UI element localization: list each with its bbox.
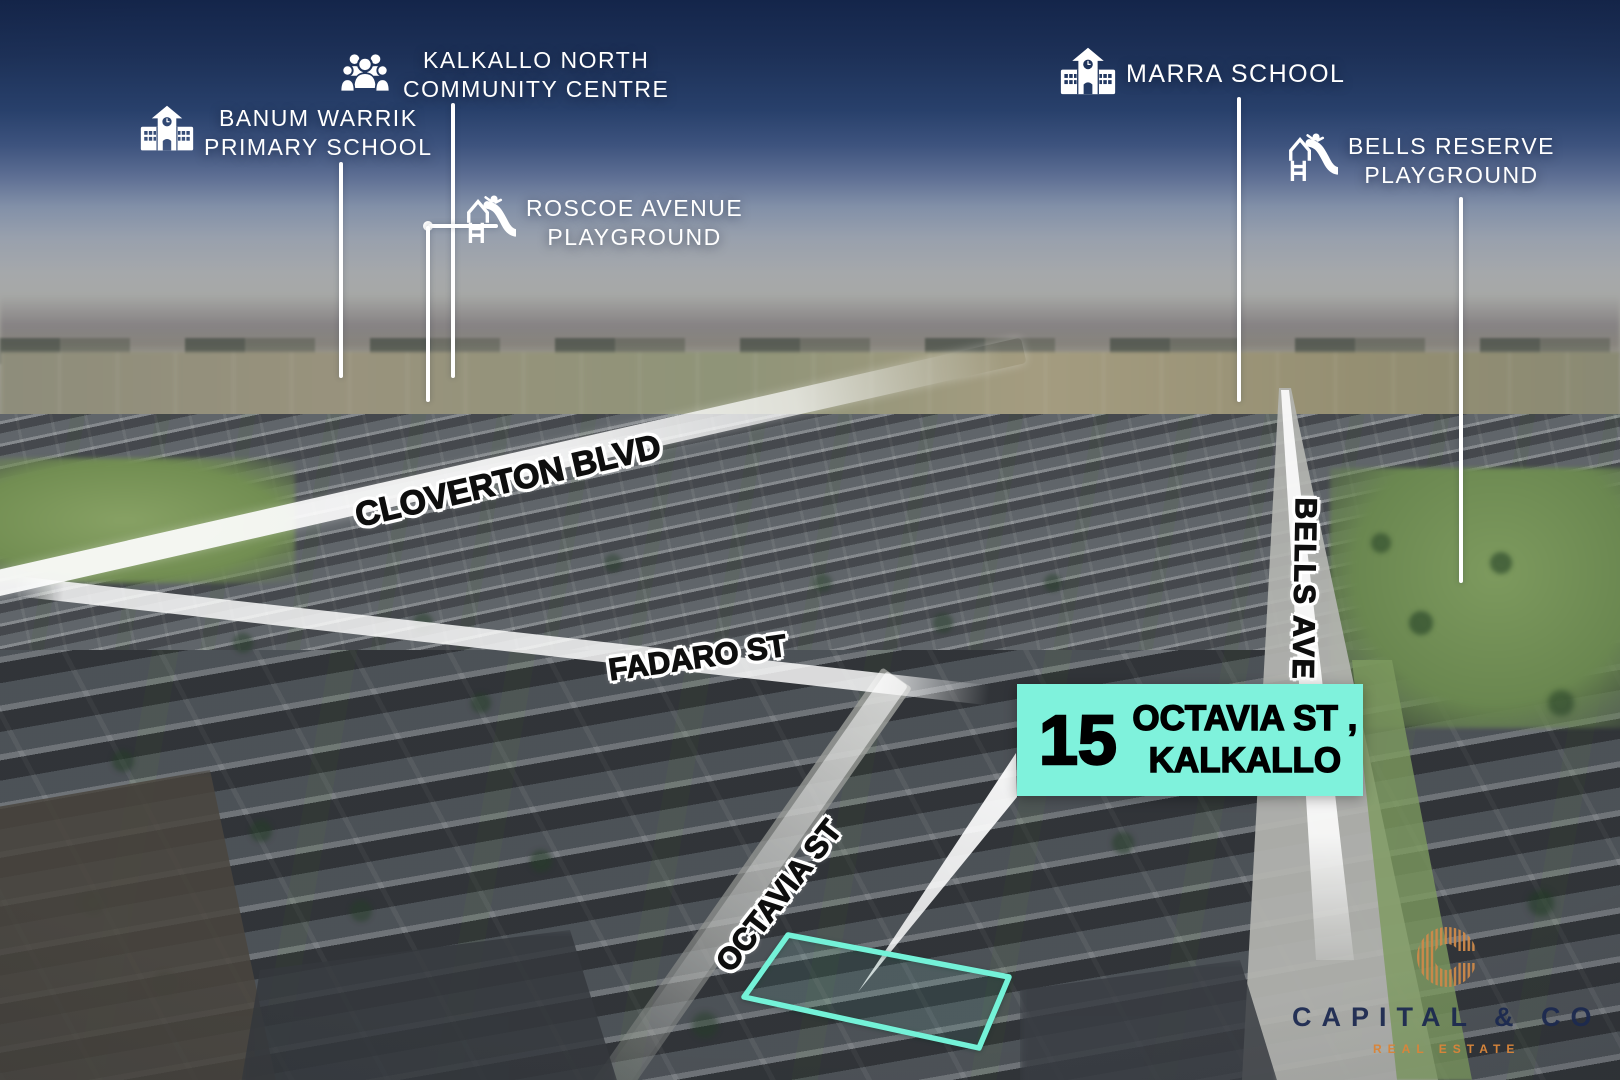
street-label-bells-ave: BELLS AVE — [1285, 497, 1322, 681]
poi-roscoe-avenue-playground: ROSCOE AVENUE PLAYGROUND — [462, 194, 743, 251]
address-line2: KALKALLO — [1131, 740, 1359, 782]
leader-line-banum-warrik — [339, 162, 343, 378]
school-icon — [140, 104, 194, 158]
poi-label: BANUM WARRIK PRIMARY SCHOOL — [204, 104, 432, 161]
poi-label: ROSCOE AVENUE PLAYGROUND — [526, 194, 743, 251]
poi-label-line2: PRIMARY SCHOOL — [204, 133, 432, 162]
poi-banum-warrik-primary-school: BANUM WARRIK PRIMARY SCHOOL — [140, 104, 432, 161]
poi-label-line1: BANUM WARRIK — [204, 104, 432, 133]
poi-marra-school: MARRA SCHOOL — [1060, 46, 1345, 102]
poi-label-line2: COMMUNITY CENTRE — [403, 75, 669, 104]
poi-bells-reserve-playground: BELLS RESERVE PLAYGROUND — [1284, 132, 1555, 189]
aerial-property-map: BANUM WARRIK PRIMARY SCHOOL — [0, 0, 1620, 1080]
capital-and-co-monogram-icon — [1417, 927, 1477, 987]
poi-label-line1: KALKALLO NORTH — [403, 46, 669, 75]
property-boundary-outline — [730, 918, 1030, 1063]
poi-label-line2: PLAYGROUND — [526, 223, 743, 252]
poi-label: KALKALLO NORTH COMMUNITY CENTRE — [403, 46, 669, 103]
address-number: 15 — [1039, 705, 1117, 775]
poi-label: BELLS RESERVE PLAYGROUND — [1348, 132, 1555, 189]
address-line1: OCTAVIA ST , — [1131, 698, 1359, 740]
leader-line-marra-school — [1237, 97, 1241, 402]
trees — [0, 0, 10, 10]
brand-wordmark: CAPITAL & CO — [1292, 1002, 1602, 1033]
poi-label-line2: PLAYGROUND — [1348, 161, 1555, 190]
leader-line-kalkallo-north — [451, 103, 455, 378]
address-callout: 15 OCTAVIA ST , KALKALLO — [1017, 684, 1363, 796]
address-text: OCTAVIA ST , KALKALLO — [1131, 698, 1359, 782]
poi-label-line1: BELLS RESERVE — [1348, 132, 1555, 161]
school-icon — [1060, 46, 1116, 102]
community-icon — [337, 46, 393, 102]
poi-label: MARRA SCHOOL — [1126, 59, 1345, 90]
poi-kalkallo-north-community-centre: KALKALLO NORTH COMMUNITY CENTRE — [337, 46, 669, 103]
leader-line-roscoe-vertical — [426, 226, 430, 402]
leader-line-bells-reserve — [1459, 197, 1463, 583]
poi-label-line1: MARRA SCHOOL — [1126, 59, 1345, 90]
brand-tagline: REAL ESTATE — [1373, 1042, 1520, 1056]
poi-label-line1: ROSCOE AVENUE — [526, 194, 743, 223]
playground-icon — [1284, 132, 1338, 186]
playground-icon — [462, 194, 516, 248]
